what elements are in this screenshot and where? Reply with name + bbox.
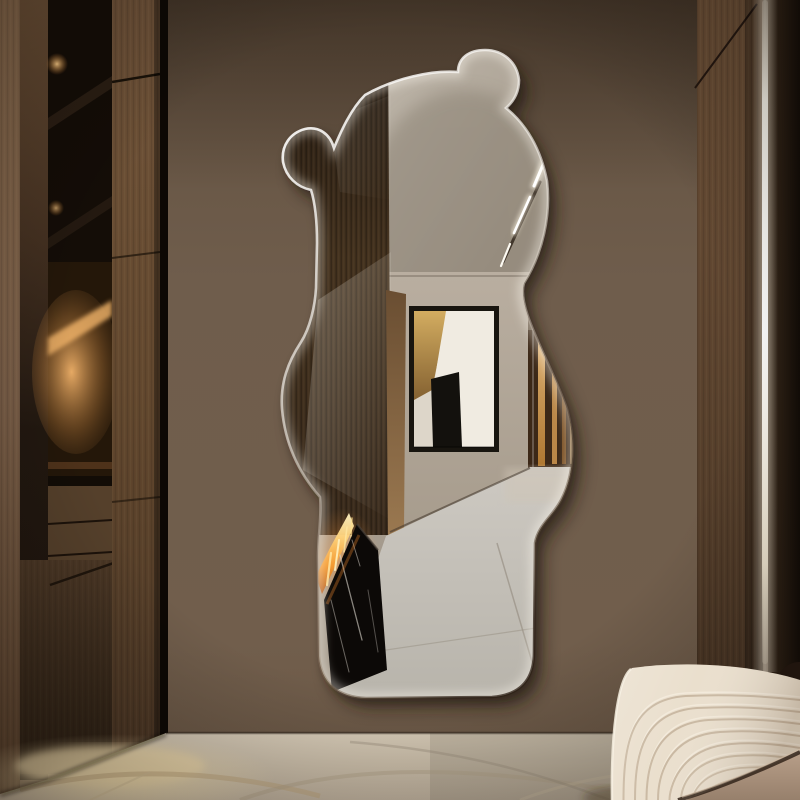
- reflected-artwork: [409, 306, 499, 452]
- artwork-black-shape: [431, 372, 462, 447]
- interior-photo: [0, 0, 800, 800]
- lit-wall-edge: [386, 290, 406, 535]
- scene-photo: [0, 0, 800, 800]
